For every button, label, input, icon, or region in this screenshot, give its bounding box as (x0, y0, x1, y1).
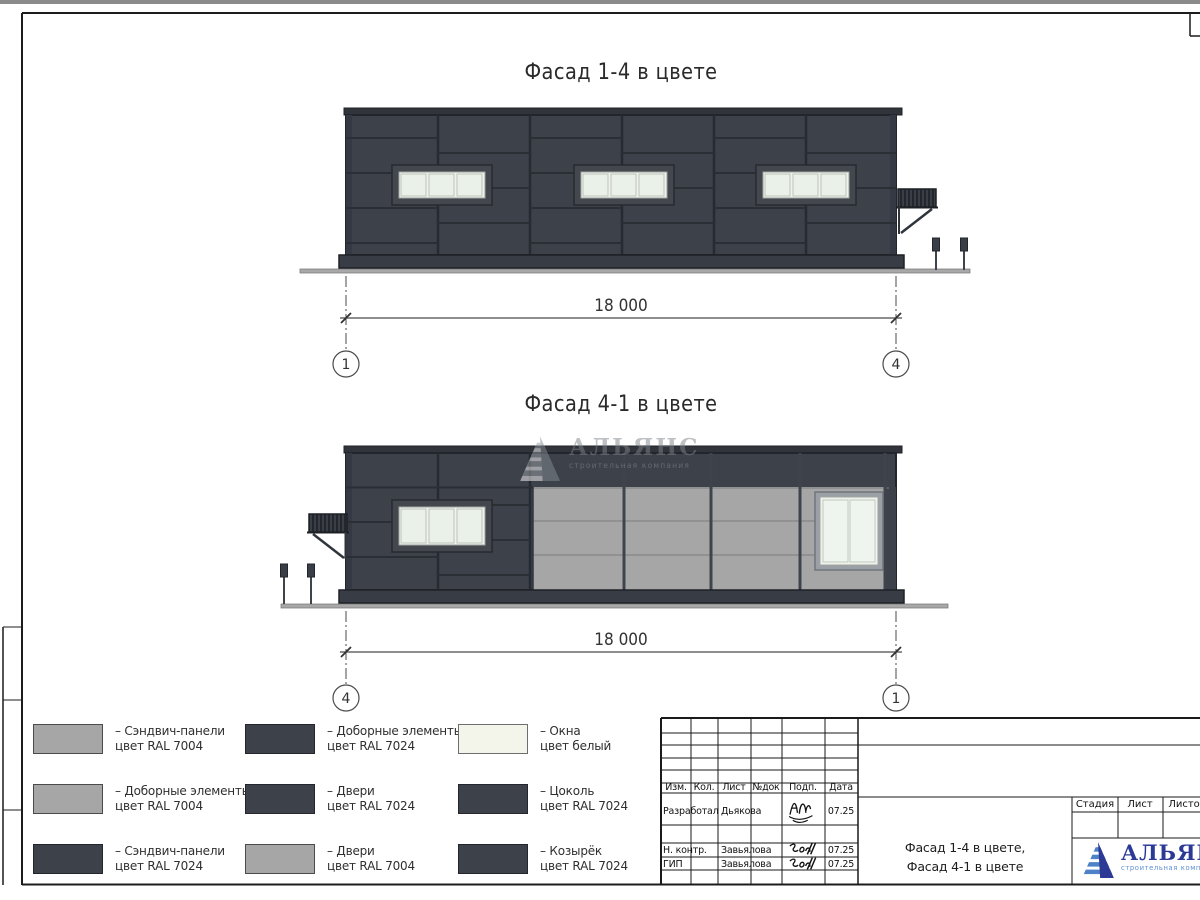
col-header: Дата (829, 782, 853, 793)
col-header: №док (752, 782, 779, 793)
plinth (339, 255, 904, 268)
logo-name: АЛЬЯНС (1121, 841, 1200, 864)
legend-item: – Дверицвет RAL 7024 (245, 784, 315, 814)
axis-number: 1 (342, 357, 351, 373)
window (815, 492, 883, 570)
drawing-sheet: 18 000 1 4 (0, 0, 1200, 900)
ground-line (300, 269, 970, 273)
legend-swatch (245, 724, 315, 754)
signer-role: ГИП (663, 859, 682, 870)
window (574, 165, 674, 205)
col-header: Кол. (694, 782, 715, 793)
legend-swatch (458, 784, 528, 814)
signer-role: Н. контр. (663, 845, 707, 856)
logo-subtitle: строительная компания (1121, 864, 1200, 872)
signature (784, 856, 824, 871)
facade1-dimension: 18 000 1 4 (333, 276, 909, 377)
legend-item: – Козырёкцвет RAL 7024 (458, 844, 528, 874)
dimension-label: 18 000 (594, 295, 647, 315)
dimension-label: 18 000 (594, 629, 647, 649)
company-logo: АЛЬЯНС строительная компания (1082, 841, 1200, 879)
signature (784, 841, 824, 856)
window (392, 500, 492, 552)
signer-name: Завьялова (721, 845, 771, 856)
axis-number: 4 (342, 691, 351, 707)
canopy (896, 189, 938, 234)
sheet-header: Лист (1127, 799, 1152, 810)
legend-item: – Дверицвет RAL 7004 (245, 844, 315, 874)
legend-swatch (458, 724, 528, 754)
watermark-triangle-icon (520, 436, 560, 481)
parapet-cap (344, 108, 902, 115)
legend-swatch (458, 844, 528, 874)
signer-name: Дьякова (721, 806, 761, 817)
watermark-subtitle: строительная компания (569, 461, 699, 470)
doc-title-line1: Фасад 1-4 в цвете, (860, 840, 1070, 855)
legend-swatch (245, 784, 315, 814)
legend-item: – Доборные элементыцвет RAL 7024 (245, 724, 315, 754)
ground-line (281, 604, 948, 608)
signer-role: Разработал (663, 806, 719, 817)
legend-swatch (33, 844, 103, 874)
company-watermark: АЛЬЯНС строительная компания (520, 436, 699, 481)
col-header: Подп. (789, 782, 817, 793)
logo-triangle-icon (1082, 841, 1114, 879)
legend-item: – Окнацвет белый (458, 724, 528, 754)
col-header: Изм. (665, 782, 687, 793)
facade2-dimension: 18 000 4 1 (333, 611, 909, 711)
legend-swatch (33, 724, 103, 754)
facade1-title: Фасад 1-4 в цвете (445, 60, 797, 85)
facade2-title: Фасад 4-1 в цвете (445, 392, 797, 417)
site-posts (281, 564, 315, 604)
axis-number: 4 (892, 357, 901, 373)
axis-number: 1 (892, 691, 901, 707)
legend-item: – Сэндвич-панелицвет RAL 7024 (33, 844, 103, 874)
sheets-header: Листов (1168, 799, 1200, 810)
site-posts (933, 238, 968, 270)
doc-title-line2: Фасад 4-1 в цвете (860, 859, 1070, 874)
watermark-name: АЛЬЯНС (569, 436, 699, 460)
window (756, 165, 856, 205)
signer-name: Завьялова (721, 859, 771, 870)
stage-header: Стадия (1076, 799, 1114, 810)
col-header: Лист (722, 782, 745, 793)
facade1-drawing (300, 108, 970, 273)
legend-item: – Доборные элементыцвет RAL 7004 (33, 784, 103, 814)
canopy (307, 514, 349, 559)
sign-date: 07.25 (828, 845, 854, 856)
sign-date: 07.25 (828, 806, 854, 817)
sign-date: 07.25 (828, 859, 854, 870)
legend-swatch (245, 844, 315, 874)
legend-swatch (33, 784, 103, 814)
plinth (339, 590, 904, 603)
signature (786, 796, 822, 824)
window (392, 165, 492, 205)
legend-item: – Сэндвич-панелицвет RAL 7004 (33, 724, 103, 754)
legend-item: – Цокольцвет RAL 7024 (458, 784, 528, 814)
